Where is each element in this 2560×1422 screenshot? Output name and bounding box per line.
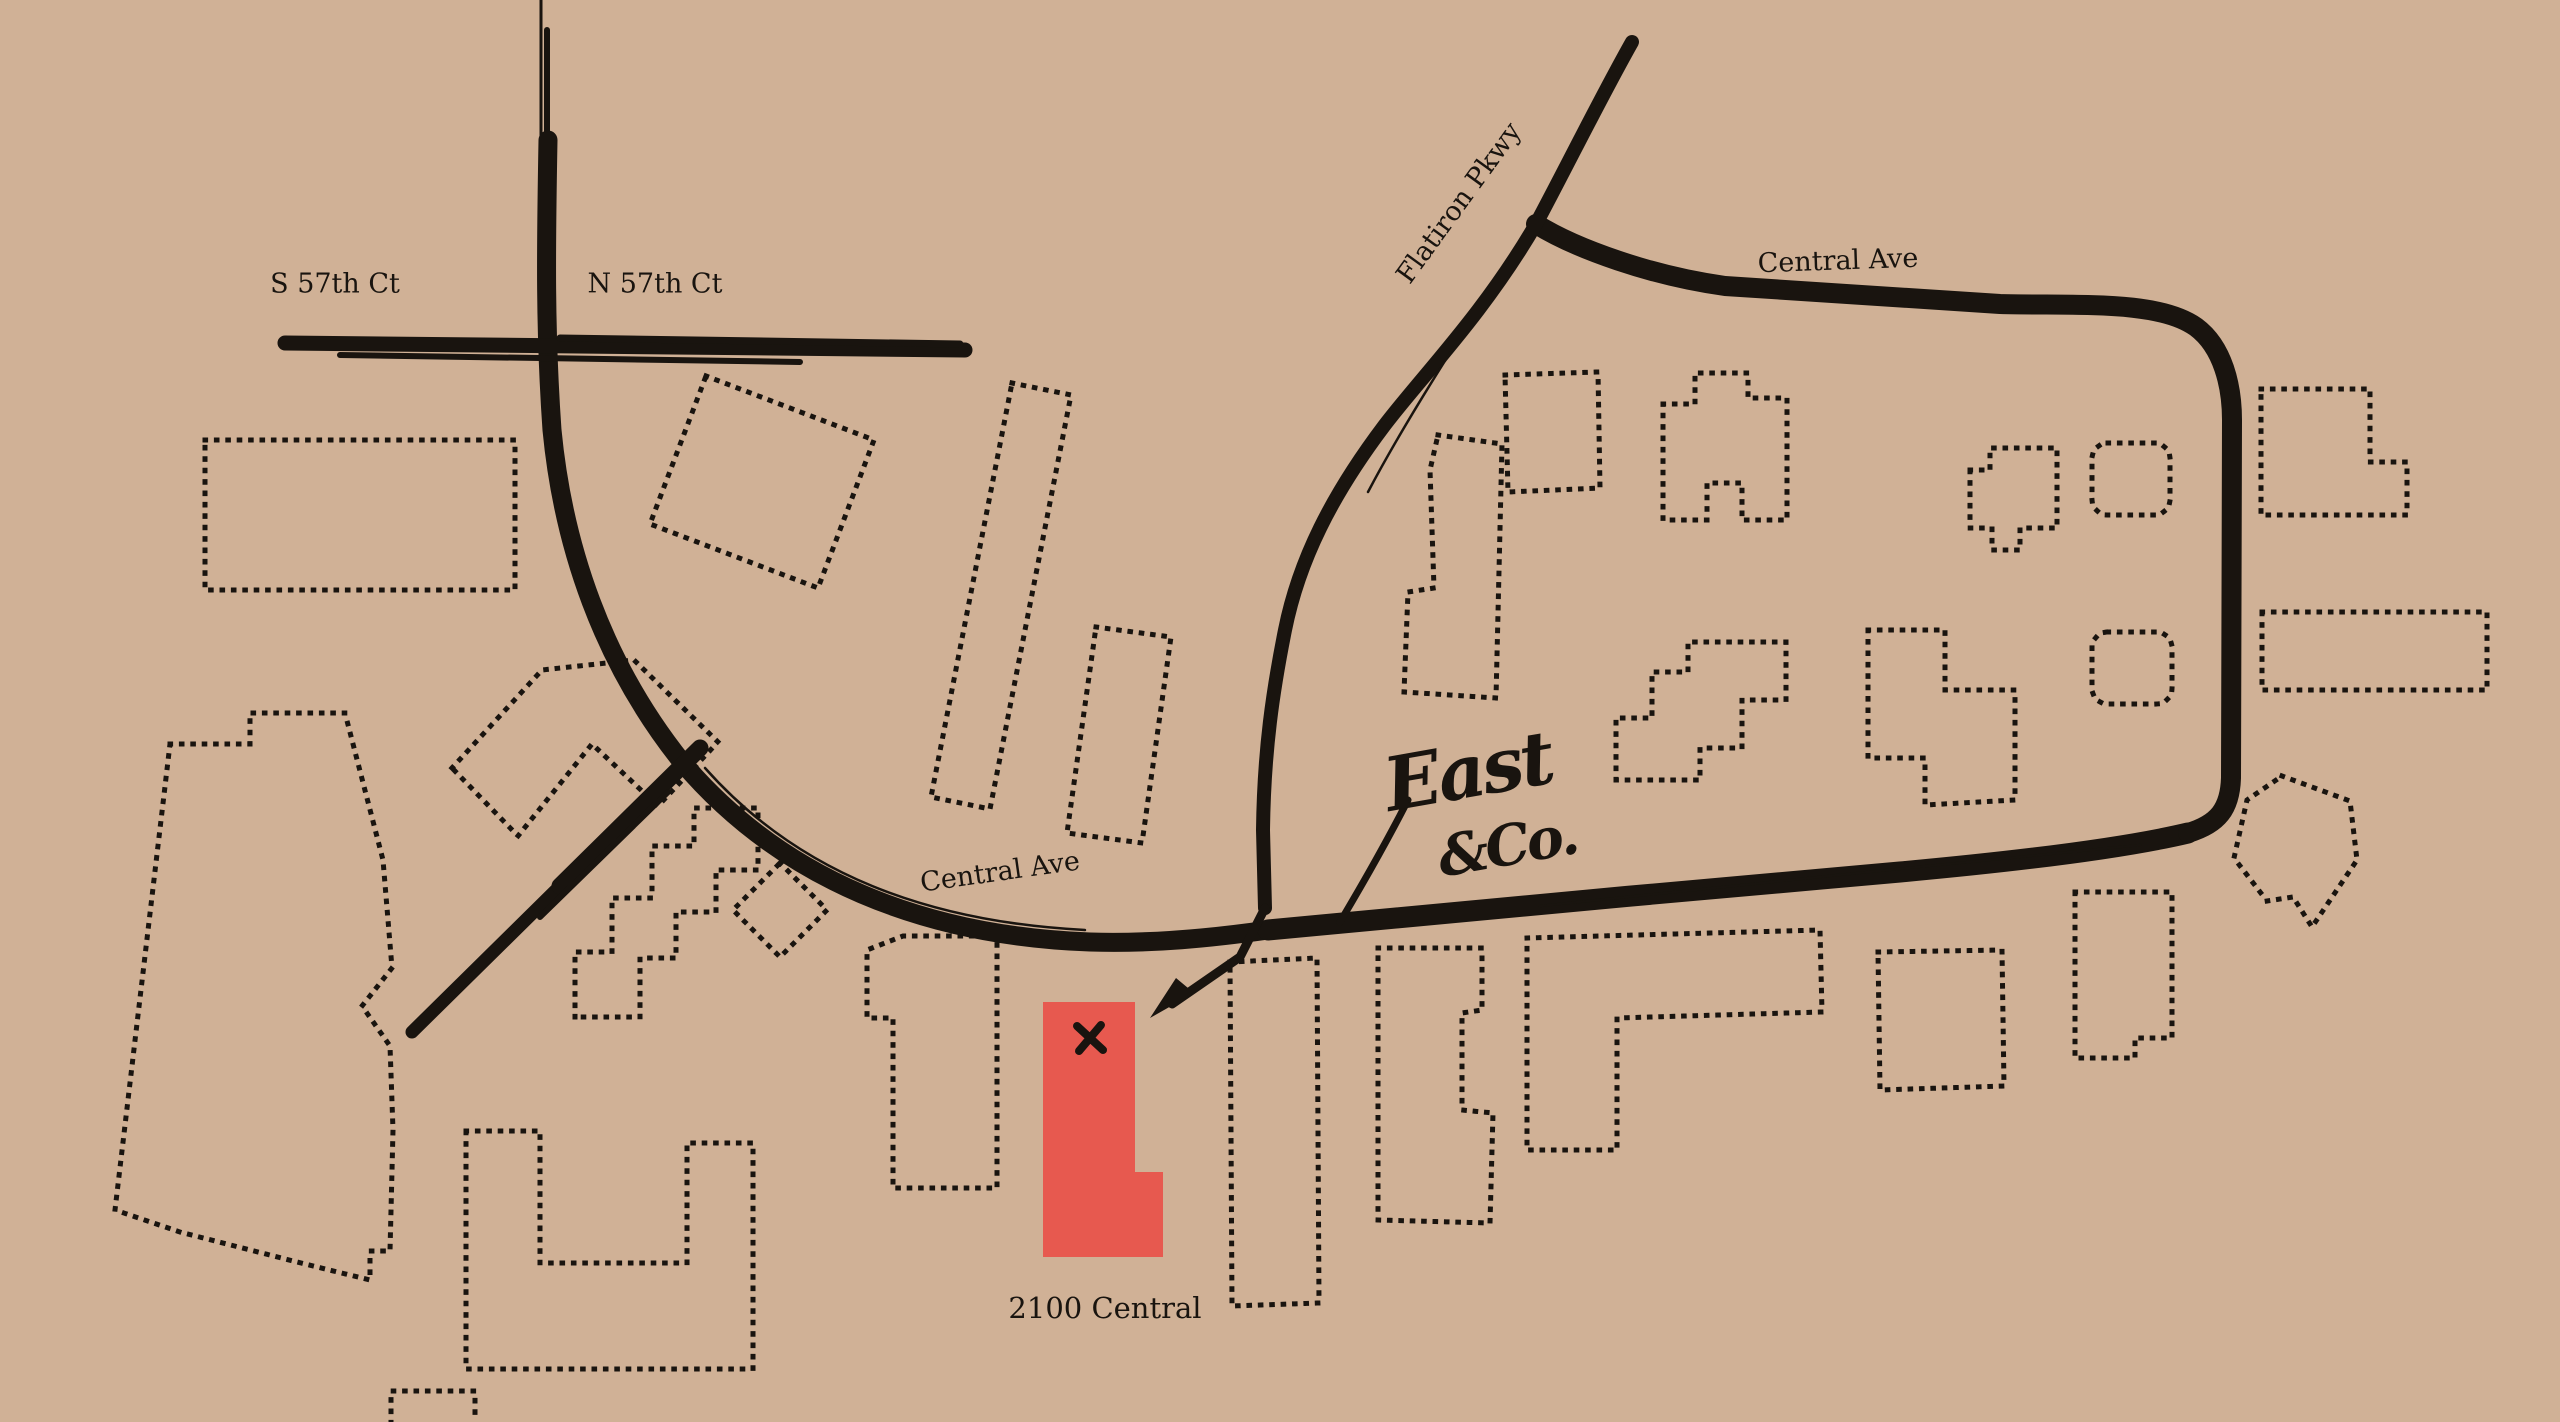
building-center-mid-slab bbox=[1067, 627, 1171, 843]
street-label-central-ave-top: Central Ave bbox=[1757, 243, 1919, 280]
building-2100-central bbox=[1043, 1002, 1163, 1257]
road-central-arc bbox=[547, 140, 1268, 942]
building-ne-castle bbox=[1663, 373, 1787, 520]
map-canvas: S 57th Ct N 57th Ct Flatiron Pkwy Centra… bbox=[0, 0, 2560, 1422]
building-loop-round-b bbox=[2092, 632, 2172, 704]
building-n-rotated-square bbox=[650, 376, 874, 588]
road-central-loop bbox=[1536, 224, 2232, 833]
building-ne-q-shape bbox=[1970, 448, 2057, 550]
building-s-notched-tall bbox=[1378, 948, 1493, 1223]
building-loop-round-a bbox=[2092, 443, 2170, 515]
map-artwork bbox=[0, 0, 2560, 1422]
road-branch-southwest-2 bbox=[560, 748, 700, 886]
brush-hairline-bottom bbox=[1540, 845, 2140, 906]
building-se-pentagon bbox=[2234, 776, 2357, 927]
street-label-s-57th-ct: S 57th Ct bbox=[270, 269, 400, 300]
building-ne-notched bbox=[1868, 630, 2015, 805]
building-s-partial-rect bbox=[391, 1391, 475, 1422]
building-se-small-rect bbox=[1878, 950, 2004, 1090]
building-s-tall-rect bbox=[1230, 958, 1319, 1306]
street-label-n-57th-ct: N 57th Ct bbox=[588, 269, 723, 300]
building-far-e-wide-rect bbox=[2262, 612, 2487, 690]
road-57th-ct-understroke bbox=[340, 355, 800, 362]
building-ne-steps bbox=[1616, 642, 1786, 780]
building-center-south-1 bbox=[867, 936, 997, 1188]
building-w-large-lot bbox=[115, 713, 393, 1280]
building-sw-u-shape bbox=[466, 1131, 753, 1369]
building-se-gamma bbox=[1527, 930, 1822, 1150]
building-nw-rectangle bbox=[205, 440, 515, 590]
building-fork-rect bbox=[1505, 372, 1600, 492]
address-label-2100-central: 2100 Central bbox=[1008, 1291, 1201, 1325]
building-far-ne-l-shape bbox=[2261, 389, 2407, 515]
road-central-bottom bbox=[1268, 833, 2188, 930]
building-e-boot bbox=[1404, 435, 1502, 698]
building-center-tall-slab bbox=[931, 383, 1071, 809]
building-se-notched-rect bbox=[2075, 892, 2172, 1058]
